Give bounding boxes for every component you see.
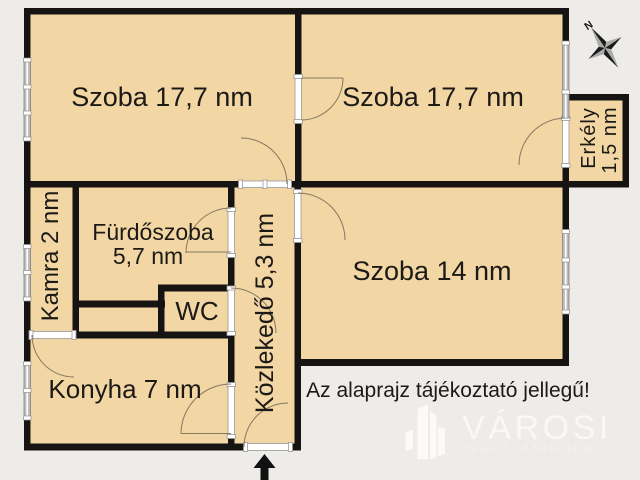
svg-text:Szoba 17,7 nm: Szoba 17,7 nm — [342, 82, 524, 112]
svg-text:5,7 nm: 5,7 nm — [113, 243, 183, 269]
svg-text:Az alaprajz tájékoztató jelleg: Az alaprajz tájékoztató jellegű! — [306, 379, 590, 402]
svg-text:Szoba 14 nm: Szoba 14 nm — [352, 256, 511, 286]
svg-text:Szoba 17,7 nm: Szoba 17,7 nm — [71, 82, 253, 112]
svg-text:1,5 nm: 1,5 nm — [599, 106, 621, 173]
svg-text:Konyha 7 nm: Konyha 7 nm — [48, 374, 201, 404]
svg-text:INGATLANIRODA: INGATLANIRODA — [462, 442, 596, 456]
svg-text:Fürdőszoba: Fürdőszoba — [92, 219, 214, 245]
svg-text:Erkély: Erkély — [578, 107, 600, 169]
svg-text:WC: WC — [175, 296, 218, 326]
svg-text:Közlekedő 5,3 nm: Közlekedő 5,3 nm — [251, 213, 279, 413]
svg-text:Kamra 2 nm: Kamra 2 nm — [37, 191, 64, 322]
